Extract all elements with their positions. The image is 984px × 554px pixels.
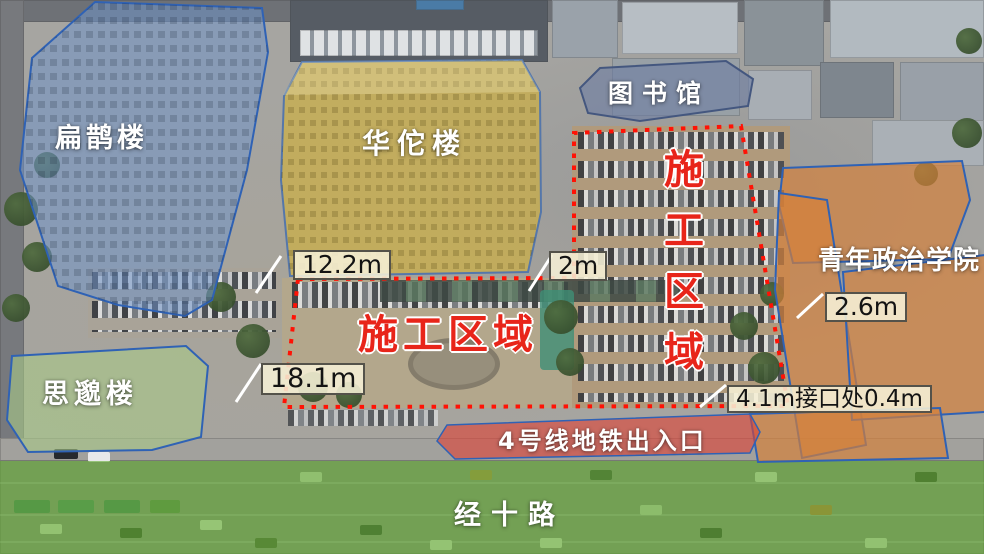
label-simiao-building: 思邈楼 (42, 372, 138, 411)
label-road: 经十路 (454, 493, 565, 532)
measurement-12-2m: 12.2m (293, 250, 391, 280)
label-construction-area-right: 施工区域 (660, 148, 700, 391)
leader-18-1m (236, 364, 261, 402)
annotation-overlay-layer (0, 0, 984, 554)
leader-4-1m (700, 385, 726, 407)
leader-12-2m (256, 256, 281, 293)
aerial-site-annotation: 扁鹊楼 华佗楼 图书馆 青年政治学院 思邈楼 4号线地铁出入口 经十路 施工区域… (0, 0, 984, 554)
measurement-2-6m: 2.6m (825, 292, 907, 322)
label-college: 青年政治学院 (818, 240, 980, 277)
bianque-windows (20, 2, 268, 316)
measurement-2m: 2m (549, 251, 607, 281)
label-huatuo-building: 华佗楼 (362, 122, 467, 162)
measurement-18-1m: 18.1m (261, 363, 365, 395)
label-bianque-building: 扁鹊楼 (55, 116, 148, 155)
measurement-interface: 4.1m接口处0.4m (727, 385, 932, 413)
label-metro-entrance: 4号线地铁出入口 (498, 421, 707, 456)
building-overlay-college-south (750, 408, 948, 462)
label-library: 图书馆 (608, 74, 710, 110)
huatuo-roof-band (283, 60, 540, 95)
label-construction-area-main: 施工区域 (358, 302, 538, 360)
